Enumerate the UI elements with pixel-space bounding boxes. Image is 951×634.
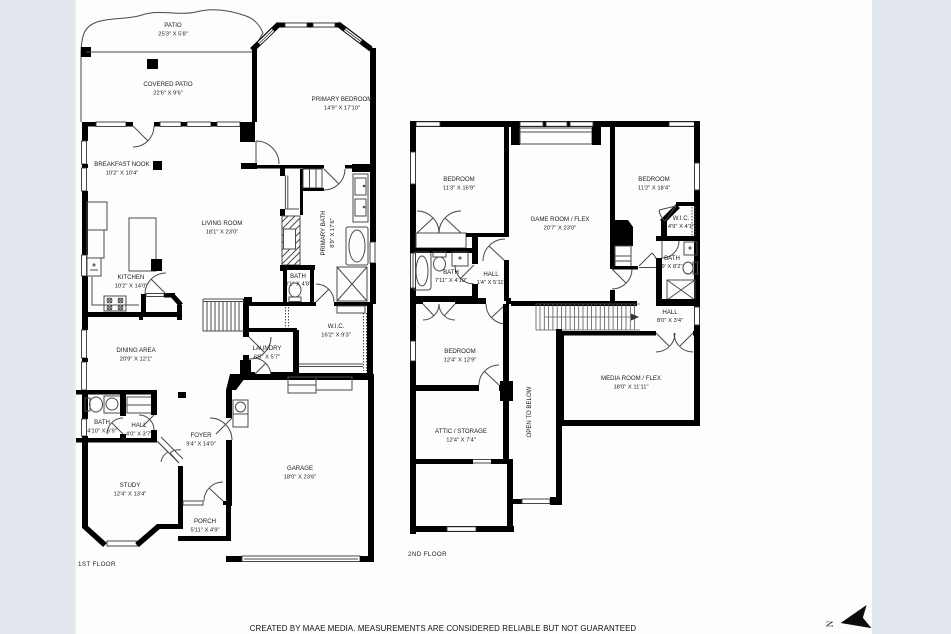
- svg-text:1'4" X 5'11": 1'4" X 5'11": [476, 280, 505, 286]
- svg-text:W.I.C.: W.I.C.: [673, 215, 690, 222]
- svg-text:10'2" X 10'4": 10'2" X 10'4": [106, 171, 139, 177]
- svg-text:BEDROOM: BEDROOM: [638, 176, 670, 183]
- svg-text:18'0" X 11'11": 18'0" X 11'11": [613, 385, 648, 391]
- svg-text:W.I.C.: W.I.C.: [328, 323, 345, 330]
- svg-text:PRIMARY BATH: PRIMARY BATH: [320, 210, 327, 255]
- svg-text:N: N: [825, 620, 835, 627]
- svg-text:1ST FLOOR: 1ST FLOOR: [78, 561, 116, 568]
- svg-text:6'5" X 5'7": 6'5" X 5'7": [254, 355, 280, 361]
- svg-text:9'4" X 14'0": 9'4" X 14'0": [186, 442, 216, 448]
- svg-text:11'2" X 18'4": 11'2" X 18'4": [638, 186, 670, 192]
- svg-text:PORCH: PORCH: [194, 518, 216, 525]
- svg-text:18'0" X 23'6": 18'0" X 23'6": [284, 475, 317, 481]
- svg-text:HALL: HALL: [483, 271, 499, 278]
- svg-text:8'0" X 3'4": 8'0" X 3'4": [657, 318, 683, 324]
- svg-text:BATH: BATH: [290, 273, 306, 280]
- svg-text:10'2" X 14'0": 10'2" X 14'0": [115, 284, 148, 290]
- svg-text:DINING AREA: DINING AREA: [116, 347, 156, 354]
- svg-text:GAME ROOM / FLEX: GAME ROOM / FLEX: [531, 216, 590, 223]
- svg-text:18'1" X 23'0": 18'1" X 23'0": [206, 230, 239, 236]
- svg-text:8'9" X 17'6": 8'9" X 17'6": [330, 218, 336, 248]
- svg-text:16'2" X 9'3": 16'2" X 9'3": [321, 333, 351, 339]
- svg-text:FOYER: FOYER: [191, 432, 213, 439]
- svg-text:12'4" X 7'4": 12'4" X 7'4": [446, 438, 476, 444]
- svg-text:COVERED PATIO: COVERED PATIO: [143, 81, 192, 88]
- svg-text:4'10" X 5'9": 4'10" X 5'9": [87, 429, 117, 435]
- svg-text:BATH: BATH: [664, 255, 680, 262]
- svg-text:ATTIC / STORAGE: ATTIC / STORAGE: [435, 428, 487, 435]
- svg-text:BEDROOM: BEDROOM: [443, 176, 475, 183]
- svg-text:12'4" X 13'4": 12'4" X 13'4": [114, 492, 147, 498]
- svg-text:2ND FLOOR: 2ND FLOOR: [408, 551, 447, 558]
- svg-text:20'7" X 23'0": 20'7" X 23'0": [544, 226, 577, 232]
- svg-text:12'4" X 12'9": 12'4" X 12'9": [444, 358, 477, 364]
- svg-text:CREATED BY MAAE MEDIA. MEASURE: CREATED BY MAAE MEDIA. MEASUREMENTS ARE …: [250, 624, 637, 633]
- svg-text:KITCHEN: KITCHEN: [118, 274, 145, 281]
- svg-text:STUDY: STUDY: [120, 482, 141, 489]
- svg-text:20'9" X 12'1": 20'9" X 12'1": [120, 357, 153, 363]
- svg-text:9' X 8'2": 9' X 8'2": [661, 264, 682, 270]
- svg-text:GARAGE: GARAGE: [287, 465, 313, 472]
- svg-text:11'3" X 16'9": 11'3" X 16'9": [443, 186, 475, 192]
- svg-text:BREAKFAST NOOK: BREAKFAST NOOK: [94, 161, 149, 168]
- svg-text:14'9" X 17'10": 14'9" X 17'10": [324, 106, 360, 112]
- svg-text:BEDROOM: BEDROOM: [444, 348, 476, 355]
- svg-text:BATH: BATH: [94, 419, 110, 426]
- svg-text:PRIMARY BEDROOM: PRIMARY BEDROOM: [312, 96, 373, 103]
- svg-text:LIVING ROOM: LIVING ROOM: [202, 220, 243, 227]
- svg-text:25'3" X 5'8": 25'3" X 5'8": [158, 32, 188, 38]
- svg-text:22'6" X 9'6": 22'6" X 9'6": [153, 91, 183, 97]
- svg-text:OPEN TO BELOW: OPEN TO BELOW: [526, 386, 533, 437]
- svg-text:3'1" X 4'8": 3'1" X 4'8": [285, 282, 311, 288]
- svg-text:MEDIA ROOM / FLEX: MEDIA ROOM / FLEX: [601, 375, 661, 382]
- svg-text:7'11" X 4'10": 7'11" X 4'10": [435, 278, 467, 284]
- svg-text:5'11" X 4'9": 5'11" X 4'9": [190, 528, 219, 534]
- svg-text:4'9" X 4'1": 4'9" X 4'1": [668, 224, 694, 230]
- svg-text:HALL: HALL: [131, 422, 147, 429]
- svg-text:PATIO: PATIO: [164, 22, 182, 29]
- svg-text:BATH: BATH: [443, 269, 459, 276]
- svg-text:4'0" X 3'7": 4'0" X 3'7": [126, 432, 152, 438]
- svg-text:LAUNDRY: LAUNDRY: [252, 345, 281, 352]
- svg-text:HALL: HALL: [662, 309, 678, 316]
